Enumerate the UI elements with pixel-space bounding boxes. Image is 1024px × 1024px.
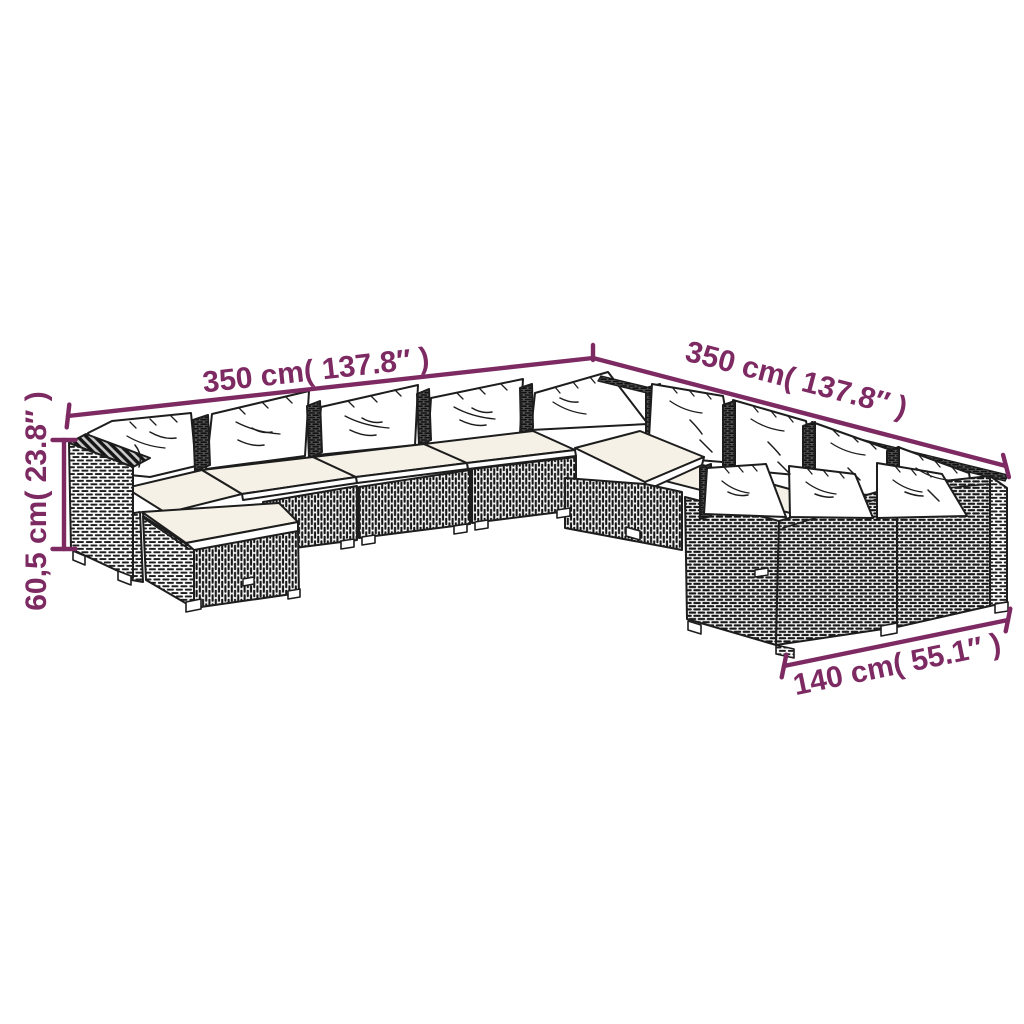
svg-text:60,5 cm( 23.8″ ): 60,5 cm( 23.8″ ) — [20, 391, 53, 611]
